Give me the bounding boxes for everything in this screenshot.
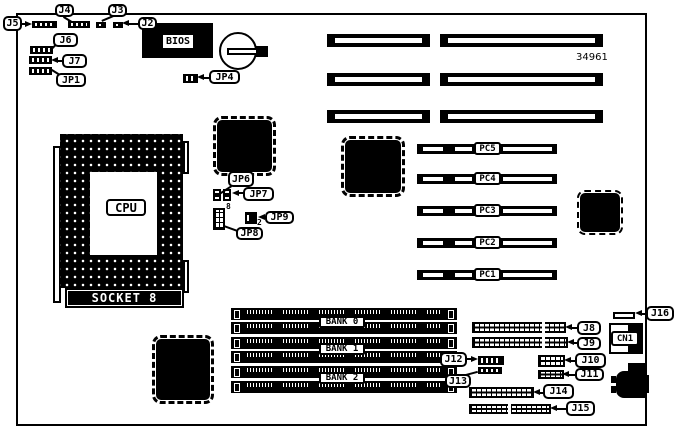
- connector-j13: [478, 367, 502, 374]
- callout-jp7: JP7: [243, 187, 274, 201]
- pci-label-pc1: PC1: [474, 268, 501, 281]
- isa-slot-3-left: [327, 110, 430, 123]
- qfp-chip-right: [580, 193, 620, 232]
- connector-j8: [472, 322, 566, 333]
- callout-j4: J4: [55, 4, 74, 17]
- callout-j12: J12: [440, 352, 467, 367]
- callout-jp9: JP9: [265, 211, 294, 224]
- callout-j3: J3: [108, 4, 127, 17]
- callout-line-j15: [557, 408, 566, 410]
- connector-jp6: [213, 189, 221, 201]
- isa-slot-3-right: [440, 110, 603, 123]
- pci-slot-pc1: PC1: [417, 270, 557, 280]
- callout-j8: J8: [577, 321, 601, 335]
- connector-jp1: [29, 67, 52, 75]
- isa-slot-2-left: [327, 73, 430, 86]
- isa-slot-1-left: [327, 34, 430, 47]
- qfp-chip-top-middle: [217, 120, 272, 172]
- callout-arrow-jp7: [232, 190, 239, 196]
- connector-j15: [469, 404, 551, 414]
- callout-arrow-j8: [565, 324, 572, 330]
- bank2-label: BANK 2: [319, 372, 365, 384]
- bank0-label: BANK 0: [319, 316, 365, 328]
- cn1-label: CN1: [611, 331, 639, 346]
- callout-j13: J13: [445, 374, 471, 388]
- callout-j10: J10: [575, 353, 606, 368]
- callout-j11: J11: [575, 368, 604, 381]
- connector-j12: [478, 356, 504, 365]
- keyboard-connector-tab2: [611, 386, 616, 393]
- connector-j9: [472, 337, 568, 348]
- callout-arrow-j12: [471, 356, 478, 362]
- callout-arrow-j10: [564, 357, 571, 363]
- keyboard-connector-tab1: [611, 376, 616, 383]
- callout-j7: J7: [62, 54, 87, 68]
- callout-arrow-j2: [122, 20, 129, 26]
- pci-label-pc4: PC4: [474, 172, 501, 185]
- callout-arrow-j7: [51, 57, 58, 63]
- callout-arrow-j9: [567, 339, 574, 345]
- isa-slot-1-right: [440, 34, 603, 47]
- callout-j14: J14: [543, 384, 574, 399]
- qfp-chip-middle: [345, 140, 401, 193]
- isa-slot-2-right: [440, 73, 603, 86]
- pci-label-pc2: PC2: [474, 236, 501, 249]
- connector-j11: [538, 370, 564, 379]
- connector-j3: [96, 22, 106, 28]
- callout-jp1: JP1: [56, 73, 86, 87]
- callout-j2: J2: [138, 17, 157, 30]
- callout-arrow-jp4: [197, 74, 204, 80]
- battery-clip-end: [256, 46, 268, 57]
- pci-slot-pc2: PC2: [417, 238, 557, 248]
- pci-slot-pc3: PC3: [417, 206, 557, 216]
- connector-j10: [538, 355, 565, 367]
- connector-j16: [613, 312, 635, 319]
- socket-clip-top: [183, 141, 189, 174]
- cpu-label: CPU: [106, 199, 146, 216]
- pci-slot-pc4: PC4: [417, 174, 557, 184]
- callout-j6: J6: [53, 33, 78, 47]
- callout-j15: J15: [566, 401, 595, 416]
- connector-j14: [469, 387, 534, 398]
- keyboard-connector: [616, 371, 646, 398]
- jp8-pin-number: 8: [226, 202, 231, 211]
- keyboard-connector-top: [628, 363, 645, 372]
- pci-slot-pc5: PC5: [417, 144, 557, 154]
- bios-label: BIOS: [163, 35, 193, 48]
- callout-j9: J9: [577, 337, 601, 350]
- callout-arrow-j16: [635, 310, 642, 316]
- socket8-label: SOCKET 8: [65, 288, 184, 308]
- callout-arrow-j11: [562, 371, 569, 377]
- connector-j7: [29, 56, 52, 64]
- pci-label-pc5: PC5: [474, 142, 501, 155]
- motherboard-diagram: J5 J4 J3 J2 J6 J7 JP1 JP4 BIOS 34961 PC5…: [0, 0, 677, 428]
- connector-jp4: [183, 74, 198, 83]
- callout-arrow-jp9: [258, 214, 265, 220]
- callout-jp6: JP6: [228, 171, 254, 187]
- keyboard-connector-ext: [644, 375, 649, 393]
- pci-label-pc3: PC3: [474, 204, 501, 217]
- callout-arrow-j15: [550, 405, 557, 411]
- connector-jp9: [245, 212, 257, 224]
- part-number: 34961: [576, 52, 608, 63]
- callout-j16: J16: [646, 306, 674, 321]
- qfp-chip-bottom-left: [156, 339, 210, 400]
- callout-jp4: JP4: [209, 70, 240, 84]
- callout-j5: J5: [3, 16, 22, 31]
- callout-jp8: JP8: [236, 227, 263, 240]
- callout-arrow-j5: [25, 21, 32, 27]
- connector-j5: [32, 21, 57, 28]
- bank1-label: BANK 1: [319, 343, 365, 355]
- callout-arrow-j14: [533, 389, 540, 395]
